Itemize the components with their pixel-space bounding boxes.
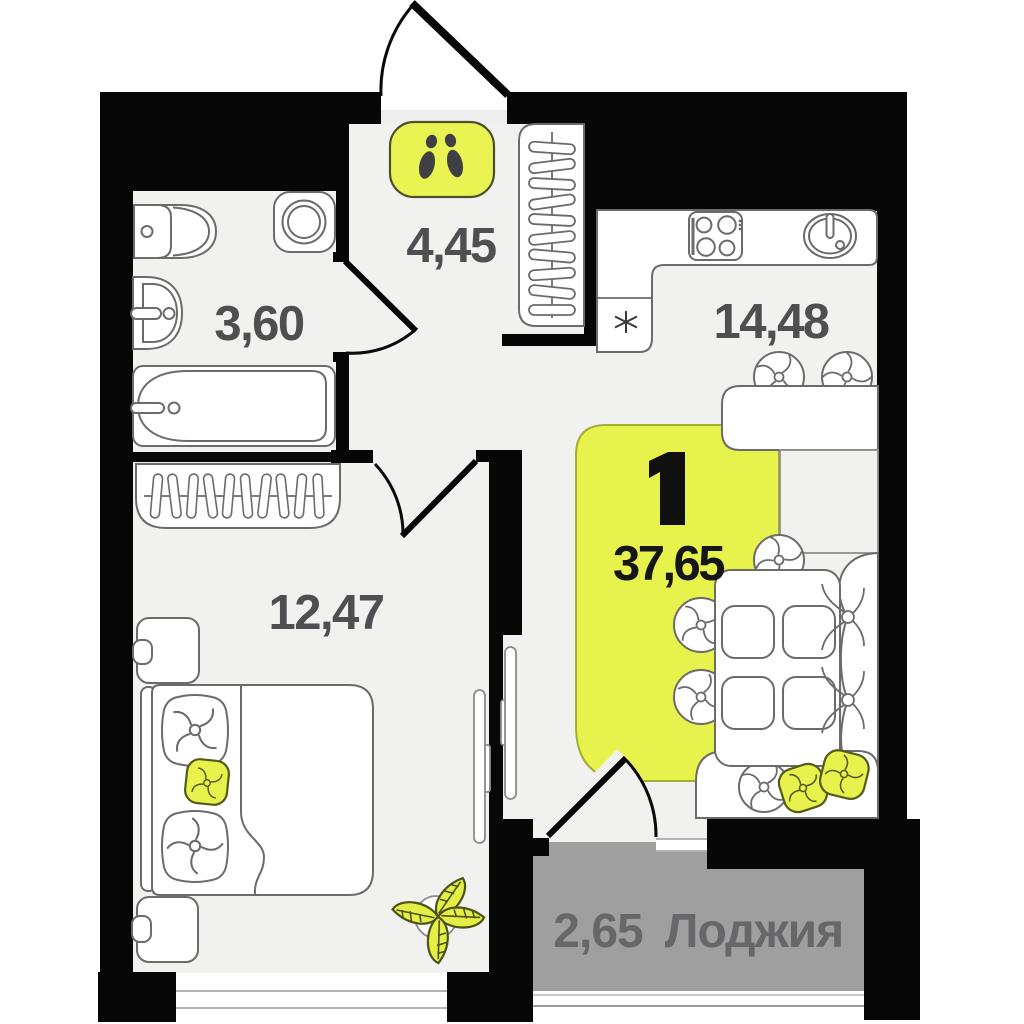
svg-text:3,60: 3,60 — [214, 297, 304, 351]
svg-text:Лоджия: Лоджия — [665, 905, 843, 958]
svg-text:4,45: 4,45 — [406, 219, 496, 273]
svg-text:12,47: 12,47 — [268, 586, 383, 640]
svg-text:37,65: 37,65 — [613, 537, 724, 591]
svg-text:14,48: 14,48 — [713, 295, 828, 349]
svg-text:2,65: 2,65 — [553, 905, 643, 958]
